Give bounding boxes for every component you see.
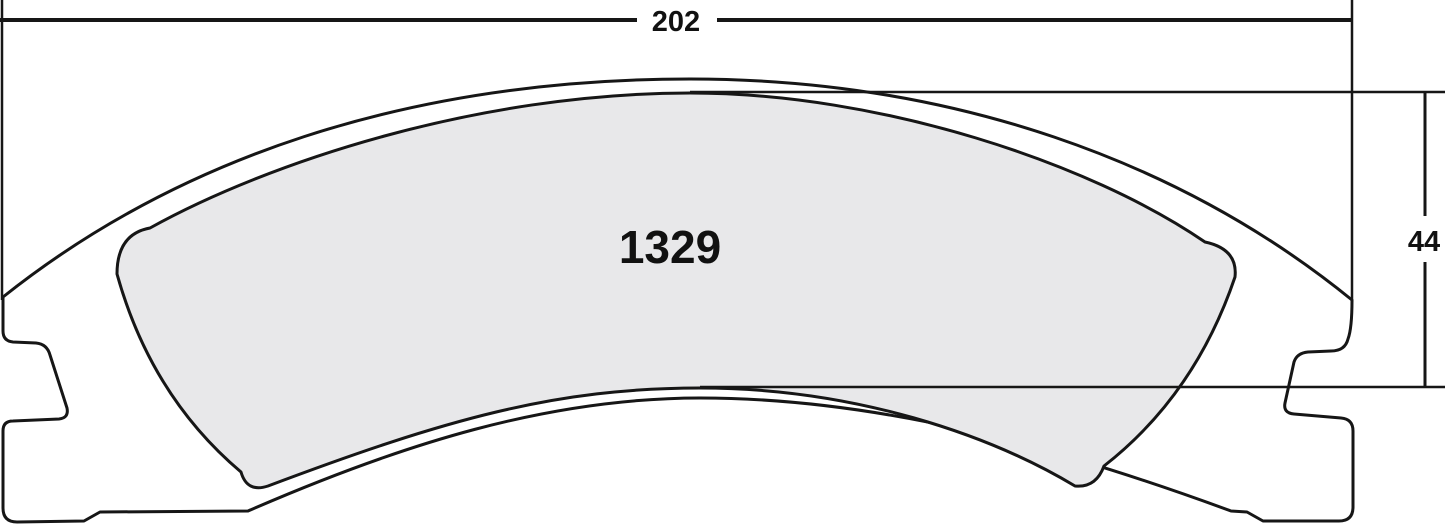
part-number-label: 1329 bbox=[619, 221, 721, 273]
width-dimension-label: 202 bbox=[652, 6, 700, 38]
height-dimension-label: 44 bbox=[1408, 226, 1440, 258]
drawing-canvas: 202 44 1329 bbox=[0, 0, 1445, 525]
brake-pad-drawing: 202 44 1329 bbox=[0, 0, 1445, 525]
brake-pad-shape bbox=[3, 79, 1353, 522]
